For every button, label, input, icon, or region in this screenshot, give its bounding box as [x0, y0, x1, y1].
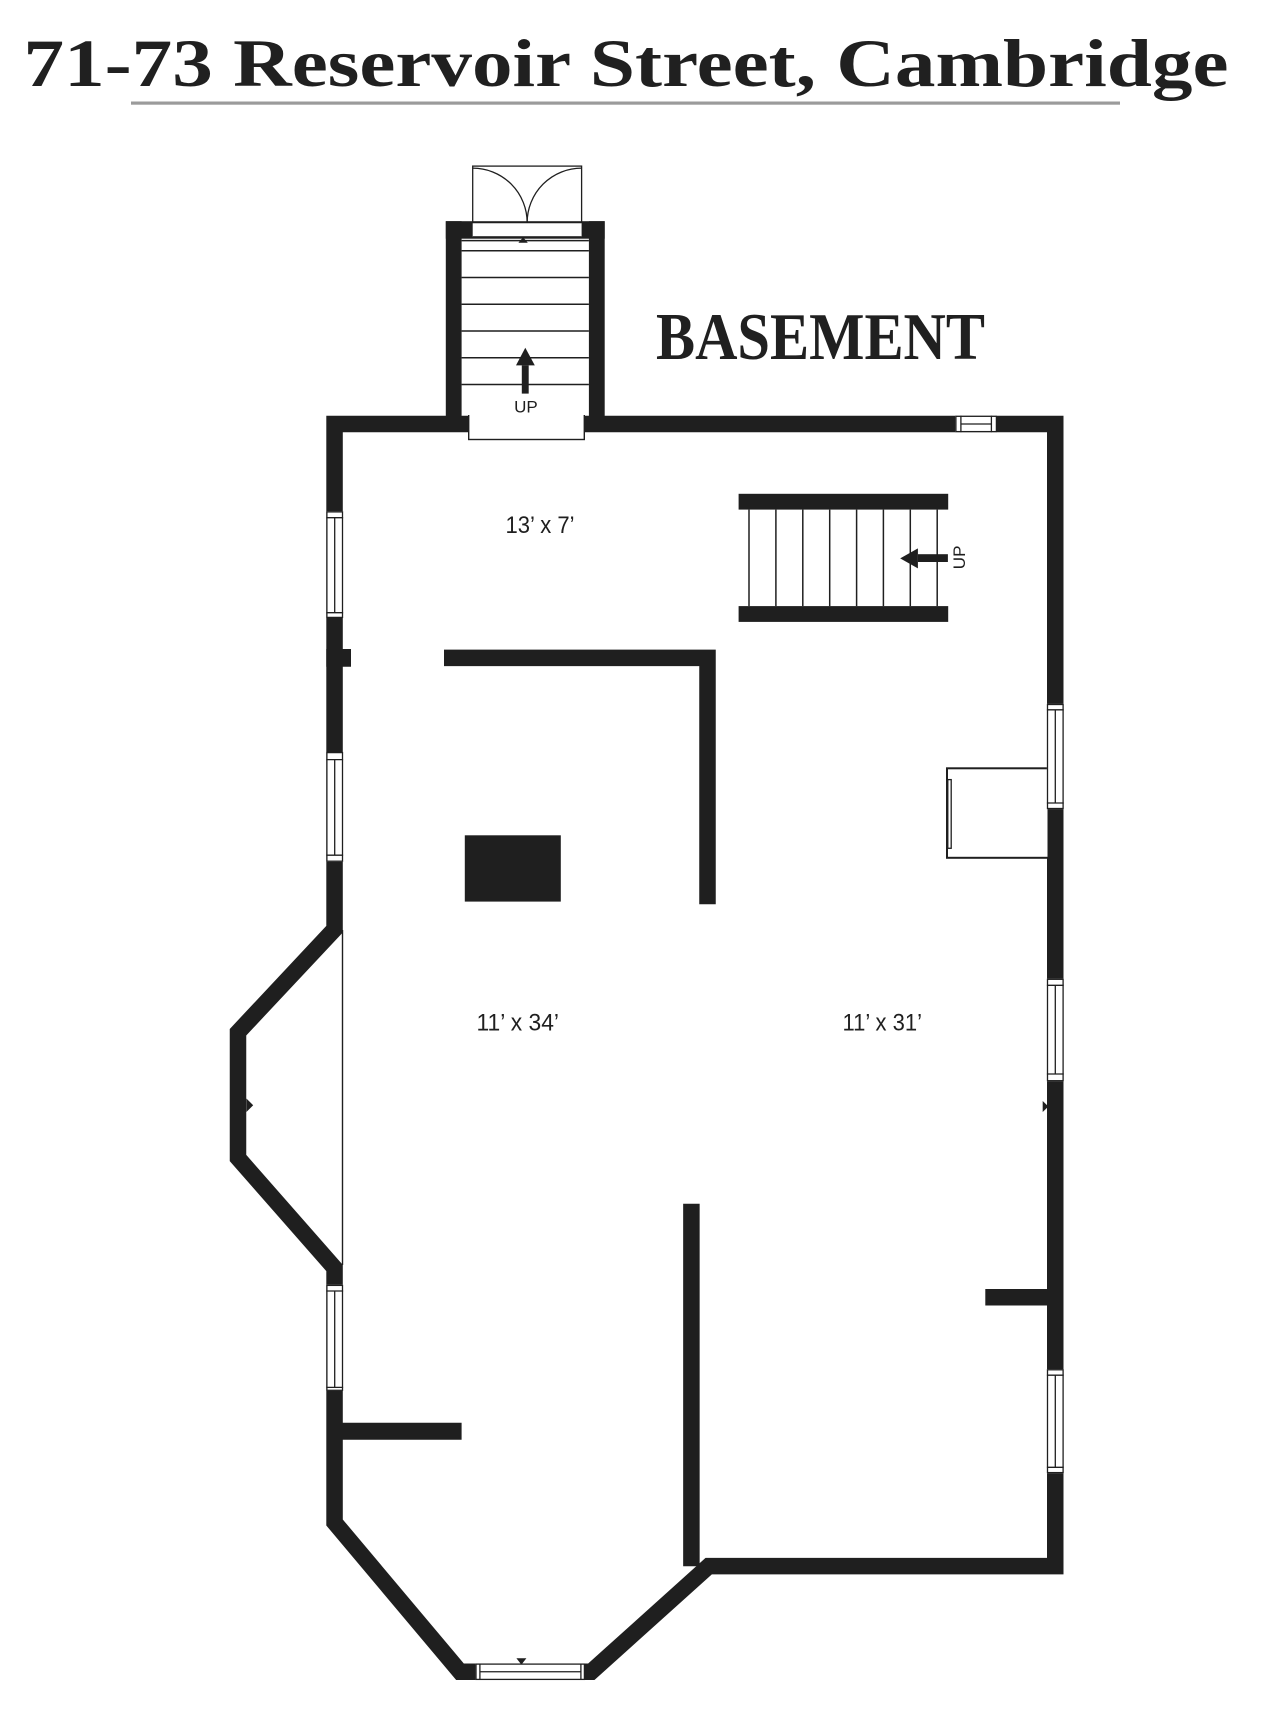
svg-text:11’ x 31’: 11’ x 31’: [843, 1010, 923, 1037]
svg-text:BASEMENT: BASEMENT: [656, 300, 985, 374]
svg-text:13’ x 7’: 13’ x 7’: [506, 512, 575, 539]
svg-text:UP: UP: [514, 397, 538, 416]
svg-text:UP: UP: [950, 546, 969, 570]
svg-text:11’ x 34’: 11’ x 34’: [477, 1010, 560, 1037]
svg-text:71-73 Reservoir Street, Cambri: 71-73 Reservoir Street, Cambridge: [24, 26, 1229, 101]
